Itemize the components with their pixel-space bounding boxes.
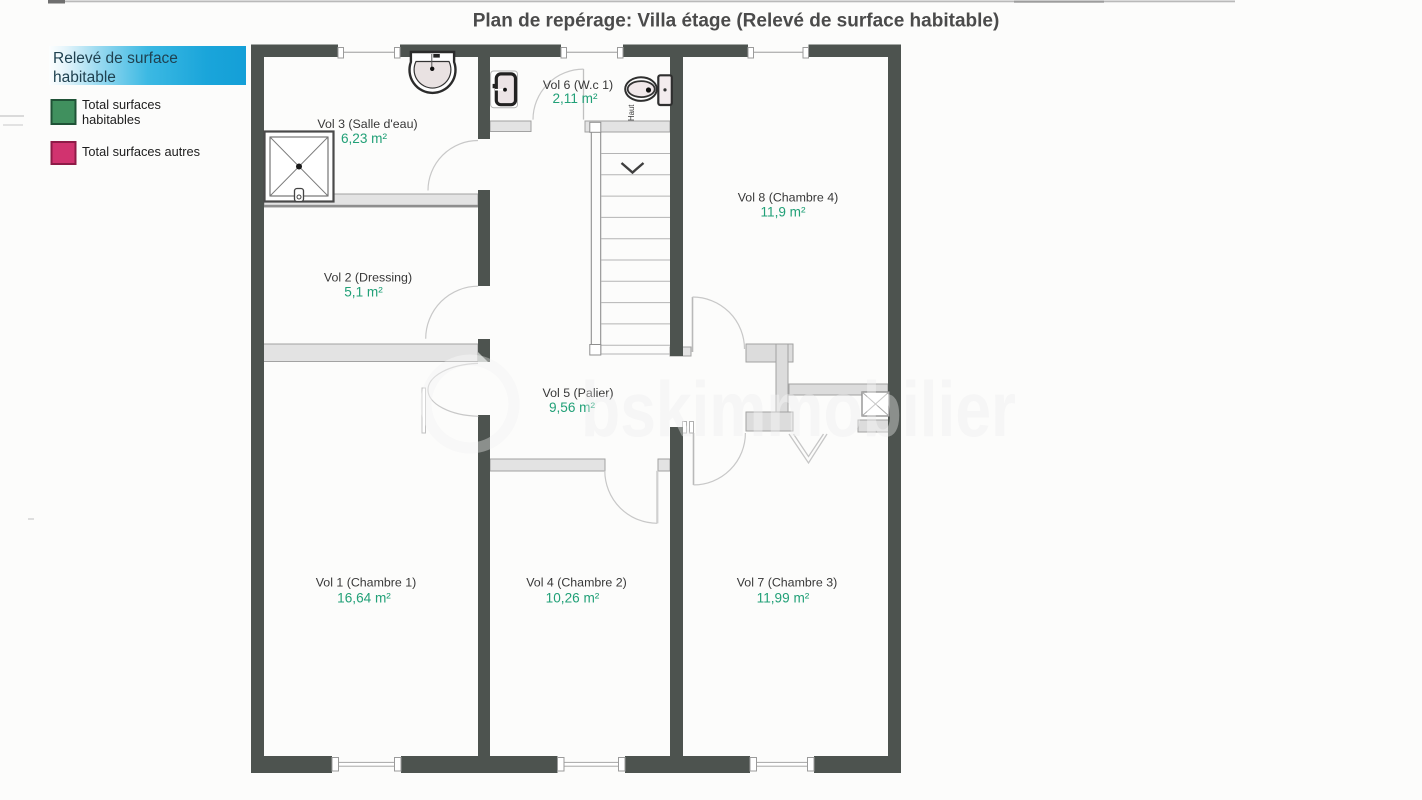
svg-text:Vol 7 (Chambre 3): Vol 7 (Chambre 3) bbox=[737, 576, 838, 590]
svg-text:Vol 4 (Chambre 2): Vol 4 (Chambre 2) bbox=[526, 576, 627, 590]
svg-text:habitable: habitable bbox=[53, 69, 116, 86]
svg-text:bskimmobilier: bskimmobilier bbox=[581, 365, 1016, 453]
svg-text:Total surfaces autres: Total surfaces autres bbox=[82, 144, 200, 159]
svg-text:11,9 m²: 11,9 m² bbox=[760, 205, 806, 220]
svg-text:Vol 6 (W.c 1): Vol 6 (W.c 1) bbox=[543, 78, 613, 92]
svg-text:5,1 m²: 5,1 m² bbox=[344, 284, 383, 299]
svg-text:Vol 3 (Salle d'eau): Vol 3 (Salle d'eau) bbox=[317, 117, 417, 131]
svg-text:Vol 8 (Chambre 4): Vol 8 (Chambre 4) bbox=[738, 191, 839, 205]
svg-text:Vol 2 (Dressing): Vol 2 (Dressing) bbox=[324, 270, 412, 284]
svg-text:Haut: Haut bbox=[627, 104, 636, 121]
svg-text:2,11 m²: 2,11 m² bbox=[552, 91, 598, 106]
svg-text:Relevé de surface: Relevé de surface bbox=[53, 50, 178, 67]
svg-text:habitables: habitables bbox=[82, 112, 140, 127]
svg-text:Plan de repérage: Villa étage: Plan de repérage: Villa étage (Relevé de… bbox=[473, 11, 1000, 32]
svg-text:6,23 m²: 6,23 m² bbox=[341, 131, 388, 146]
svg-text:Vol 1 (Chambre 1): Vol 1 (Chambre 1) bbox=[316, 576, 417, 590]
svg-text:Total surfaces: Total surfaces bbox=[82, 97, 161, 112]
svg-text:11,99 m²: 11,99 m² bbox=[757, 590, 810, 605]
svg-text:16,64 m²: 16,64 m² bbox=[337, 590, 391, 605]
svg-text:10,26 m²: 10,26 m² bbox=[546, 590, 600, 605]
